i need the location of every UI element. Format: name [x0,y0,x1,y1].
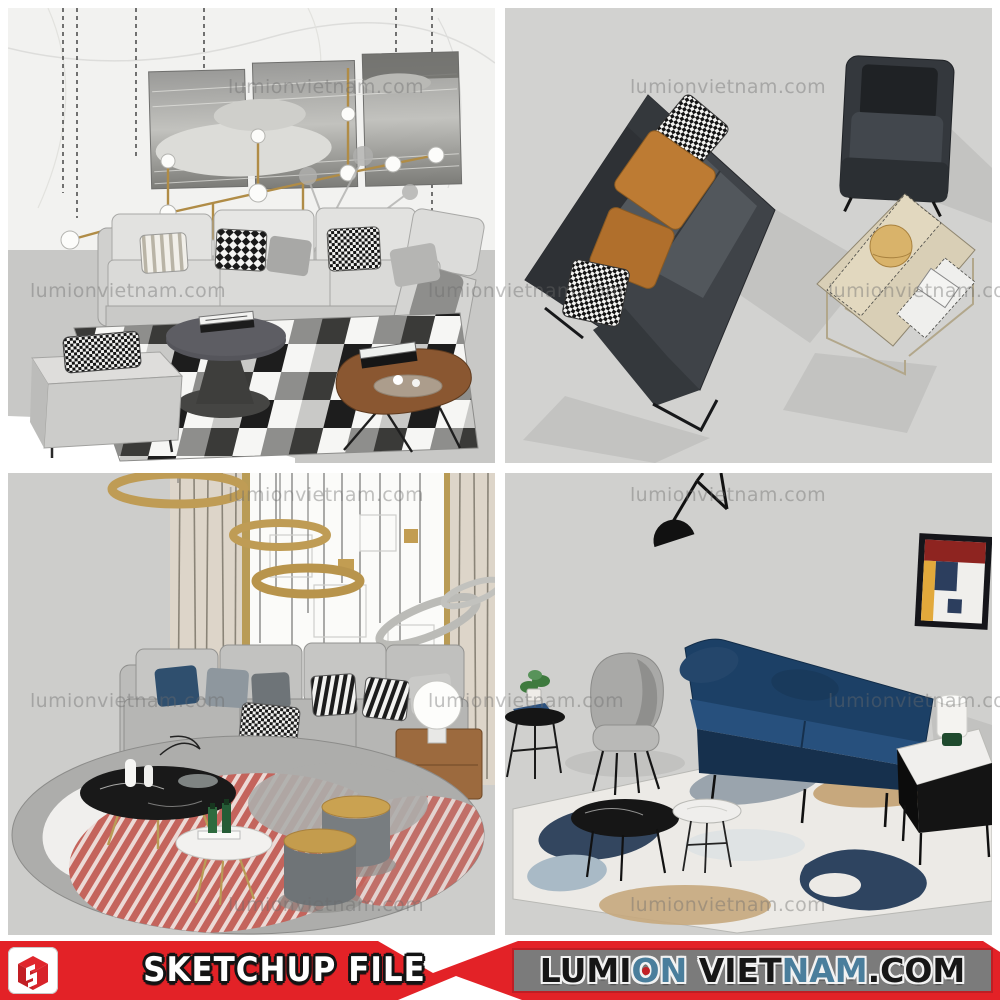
site-url-segment: .COM [868,954,966,987]
site-url-box: LUMI O N VIET NAM .COM [512,948,993,993]
scene-navy-sofa-abstract-rug-set [505,473,992,935]
scene-top-left-illustration [8,8,495,463]
site-url-segment: NAM [782,954,868,987]
scene-top-right-illustration [505,8,992,463]
promo-collage: lumionvietnam.com lumionvietnam.com lumi… [0,0,1000,1000]
promo-banner: SKETCHUP FILE LUMI O N VIET NAM .COM [0,941,1000,1000]
charcoal-armchair [839,55,955,216]
scene-bottom-left-illustration [8,473,495,935]
site-url-segment: VIET [687,954,781,987]
site-url-segment: LUMI [540,954,632,987]
scene-gray-sofa-round-rug-set [8,473,495,935]
site-url-segment-o: O [632,954,660,987]
sketchup-cube-icon [8,947,58,994]
scene-white-sectional-living-set [8,8,495,463]
banner-title: SKETCHUP FILE [112,948,457,991]
abstract-wall-art [915,533,992,630]
scene-charcoal-sofa-armchair-set [505,8,992,463]
sketchup-logo [8,947,58,994]
scene-bottom-right-illustration [505,473,992,935]
site-url-segment: N [660,954,688,987]
sphere-lamp [413,681,461,729]
